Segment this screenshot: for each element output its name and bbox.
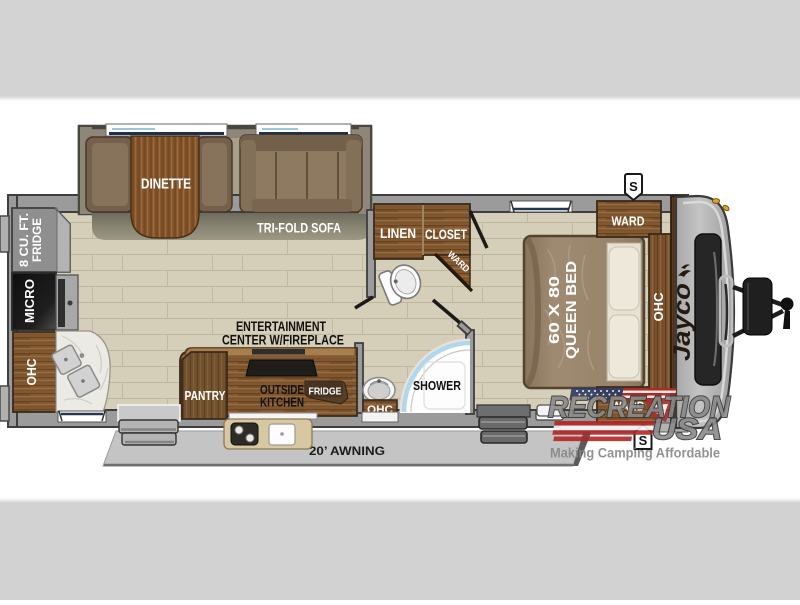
svg-text:FRIDGE: FRIDGE [32, 218, 44, 262]
svg-text:OHC: OHC [652, 293, 666, 322]
svg-text:OHC: OHC [25, 359, 39, 386]
svg-text:20’ AWNING: 20’ AWNING [309, 444, 385, 458]
svg-text:60 X 80: 60 X 80 [547, 276, 563, 344]
svg-text:USA: USA [652, 413, 722, 446]
svg-text:SHOWER: SHOWER [413, 378, 462, 393]
svg-text:Making Camping Affordable: Making Camping Affordable [550, 446, 720, 461]
svg-text:LINEN: LINEN [380, 225, 416, 241]
svg-text:WARD: WARD [612, 215, 645, 229]
svg-text:MICRO: MICRO [23, 279, 37, 323]
svg-text:Jayco: Jayco [669, 283, 696, 361]
svg-text:QUEEN BED: QUEEN BED [564, 261, 580, 359]
svg-text:FRIDGE: FRIDGE [309, 386, 342, 398]
svg-text:8 CU. FT.: 8 CU. FT. [19, 213, 31, 267]
svg-text:DINETTE: DINETTE [141, 177, 191, 193]
svg-text:KITCHEN: KITCHEN [260, 396, 304, 410]
svg-text:PANTRY: PANTRY [185, 388, 226, 403]
svg-text:S: S [629, 179, 638, 194]
svg-text:CLOSET: CLOSET [425, 226, 467, 242]
svg-text:TRI-FOLD SOFA: TRI-FOLD SOFA [257, 220, 341, 236]
svg-text:CENTER W/FIREPLACE: CENTER W/FIREPLACE [222, 333, 344, 348]
